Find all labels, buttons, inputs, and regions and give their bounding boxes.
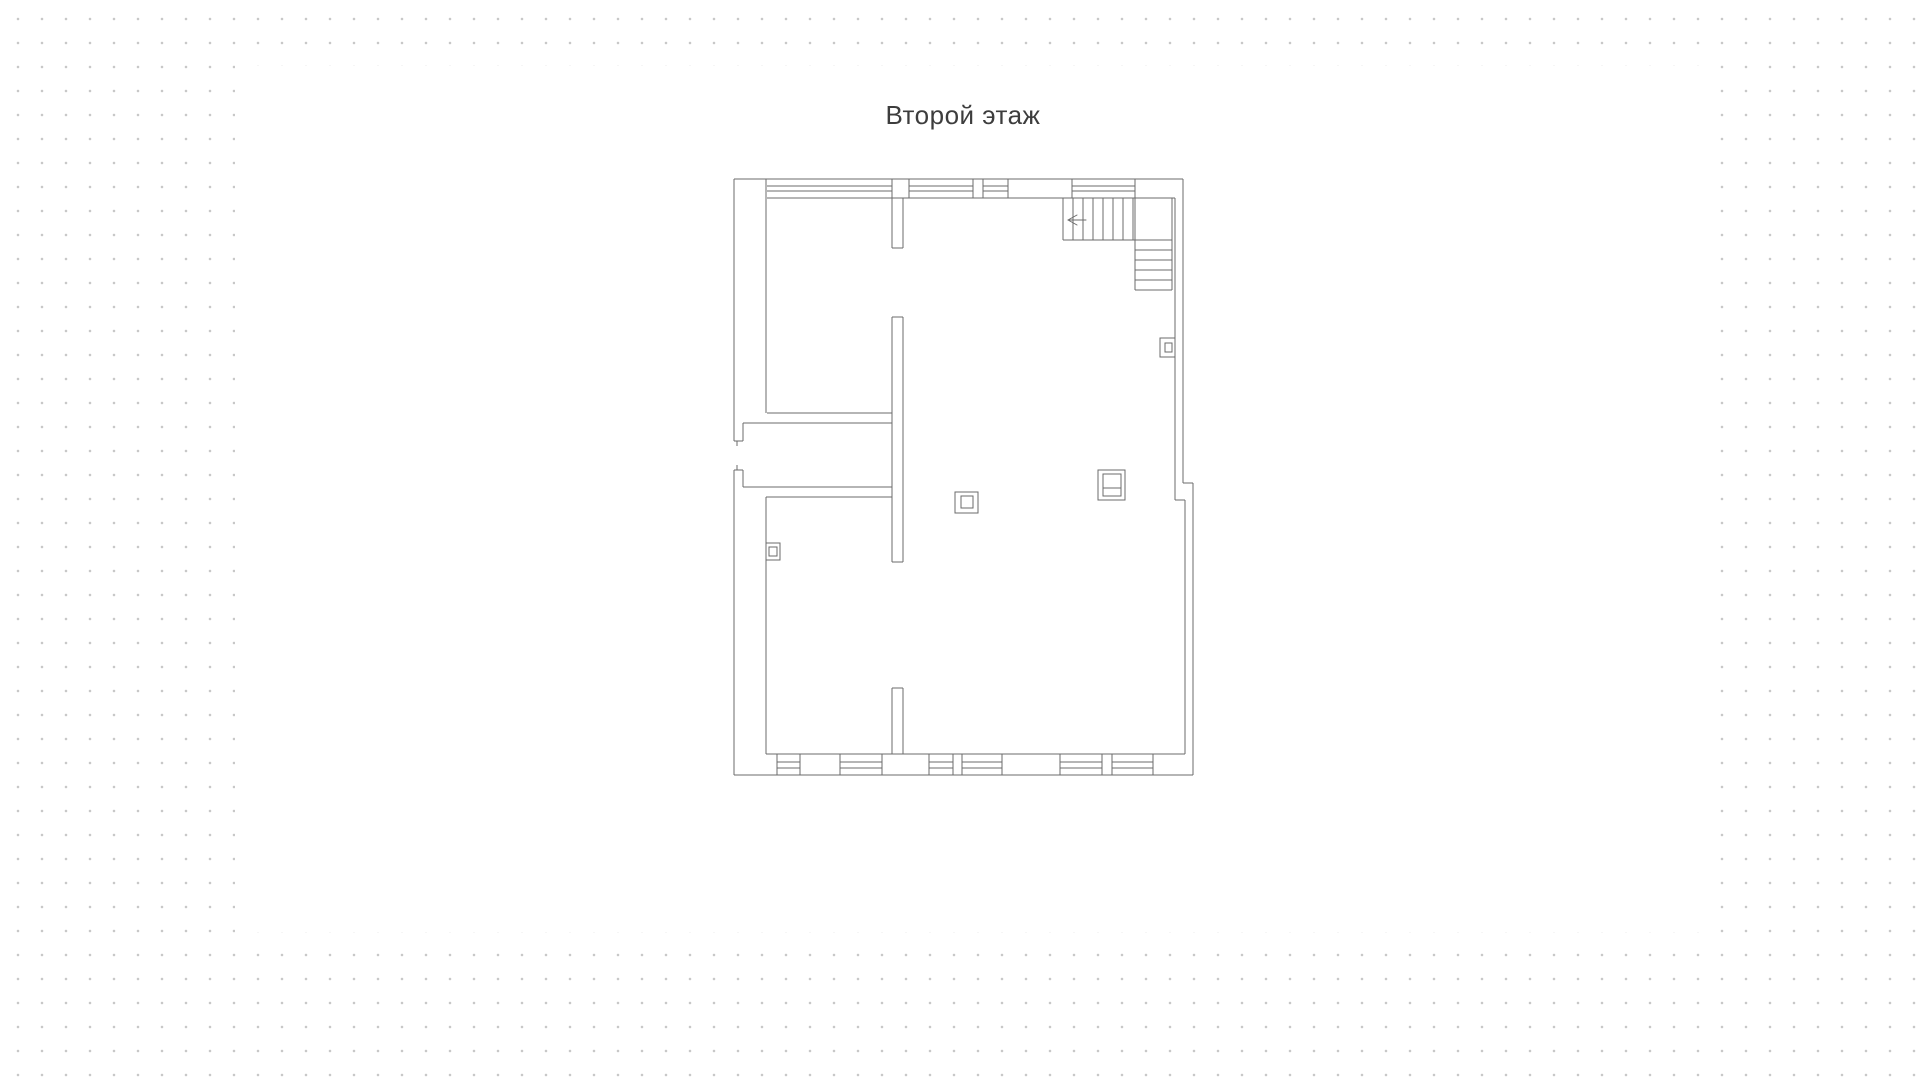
floor-plan-drawing[interactable] xyxy=(0,0,1920,1078)
windows-layer xyxy=(767,186,1153,768)
flue-markers-layer xyxy=(766,338,1175,560)
stairs-layer xyxy=(1063,179,1172,290)
design-canvas: Второй этаж xyxy=(0,0,1920,1078)
